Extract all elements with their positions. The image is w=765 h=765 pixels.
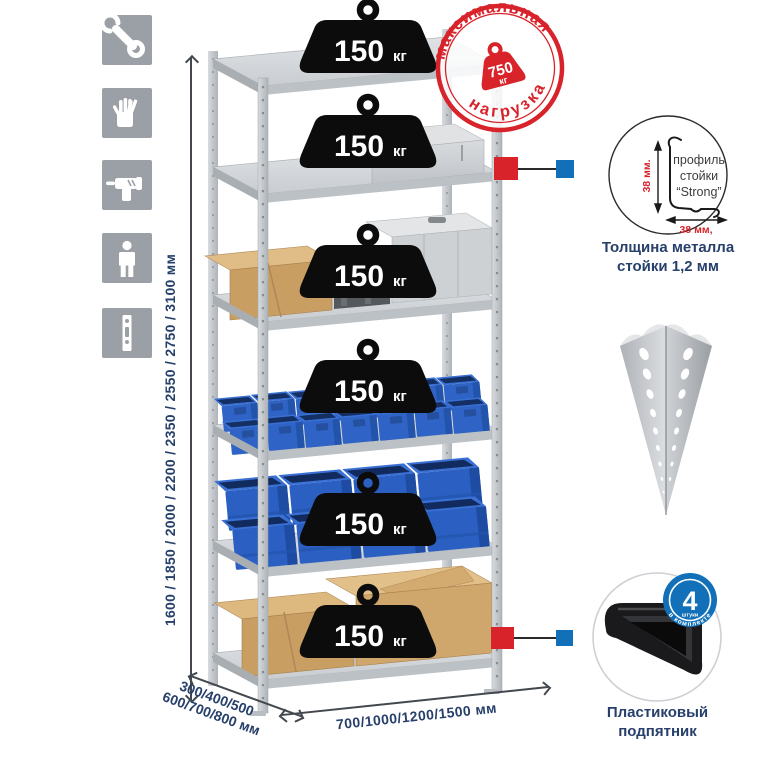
callout-bottom [491, 627, 573, 649]
svg-text:кг: кг [393, 388, 407, 405]
svg-text:4: 4 [682, 586, 697, 616]
svg-text:профиль: профиль [673, 153, 725, 167]
shelf-load-badge: 150 кг [283, 92, 453, 174]
svg-text:150: 150 [334, 508, 384, 541]
svg-text:кг: кг [393, 48, 407, 65]
svg-text:150: 150 [334, 35, 384, 68]
shelf-load-badge: 150 кг [283, 582, 453, 664]
infographic-stage: 1600 / 1850 / 2000 / 2200 / 2350 / 2550 … [0, 0, 765, 765]
post-profile-diagram: 38 мм. 38 мм, профиль стойки “Strong” [598, 110, 738, 250]
shelf-load-badge: 150 кг [283, 470, 453, 552]
shelf-load-badge: 150 кг [283, 222, 453, 304]
svg-text:38 мм.: 38 мм. [641, 159, 653, 192]
svg-text:кг: кг [393, 521, 407, 538]
red-marker-top [494, 157, 518, 180]
svg-text:150: 150 [334, 620, 384, 653]
svg-text:стойки: стойки [680, 169, 718, 183]
svg-text:штуки: штуки [682, 613, 699, 619]
shelf-load-badge: 150 кг [283, 337, 453, 419]
foot-caption: Пластиковый подпятник [575, 703, 740, 741]
blue-marker-bottom [556, 630, 573, 646]
plastic-foot-image: 4 штуки в комплекте [590, 568, 740, 718]
svg-text:“Strong”: “Strong” [676, 185, 721, 199]
callout-top [494, 157, 574, 180]
red-marker-bottom [491, 627, 514, 649]
svg-text:кг: кг [393, 633, 407, 650]
svg-text:кг: кг [393, 273, 407, 290]
profile-caption: Толщина металла стойки 1,2 мм [583, 238, 753, 276]
quantity-badge: 4 штуки в комплекте [663, 573, 717, 628]
svg-text:150: 150 [334, 375, 384, 408]
blue-marker-top [556, 160, 574, 178]
svg-text:кг: кг [393, 143, 407, 160]
corner-post-image [596, 310, 736, 520]
svg-text:38 мм,: 38 мм, [679, 224, 712, 236]
svg-text:150: 150 [334, 260, 384, 293]
svg-text:150: 150 [334, 130, 384, 163]
